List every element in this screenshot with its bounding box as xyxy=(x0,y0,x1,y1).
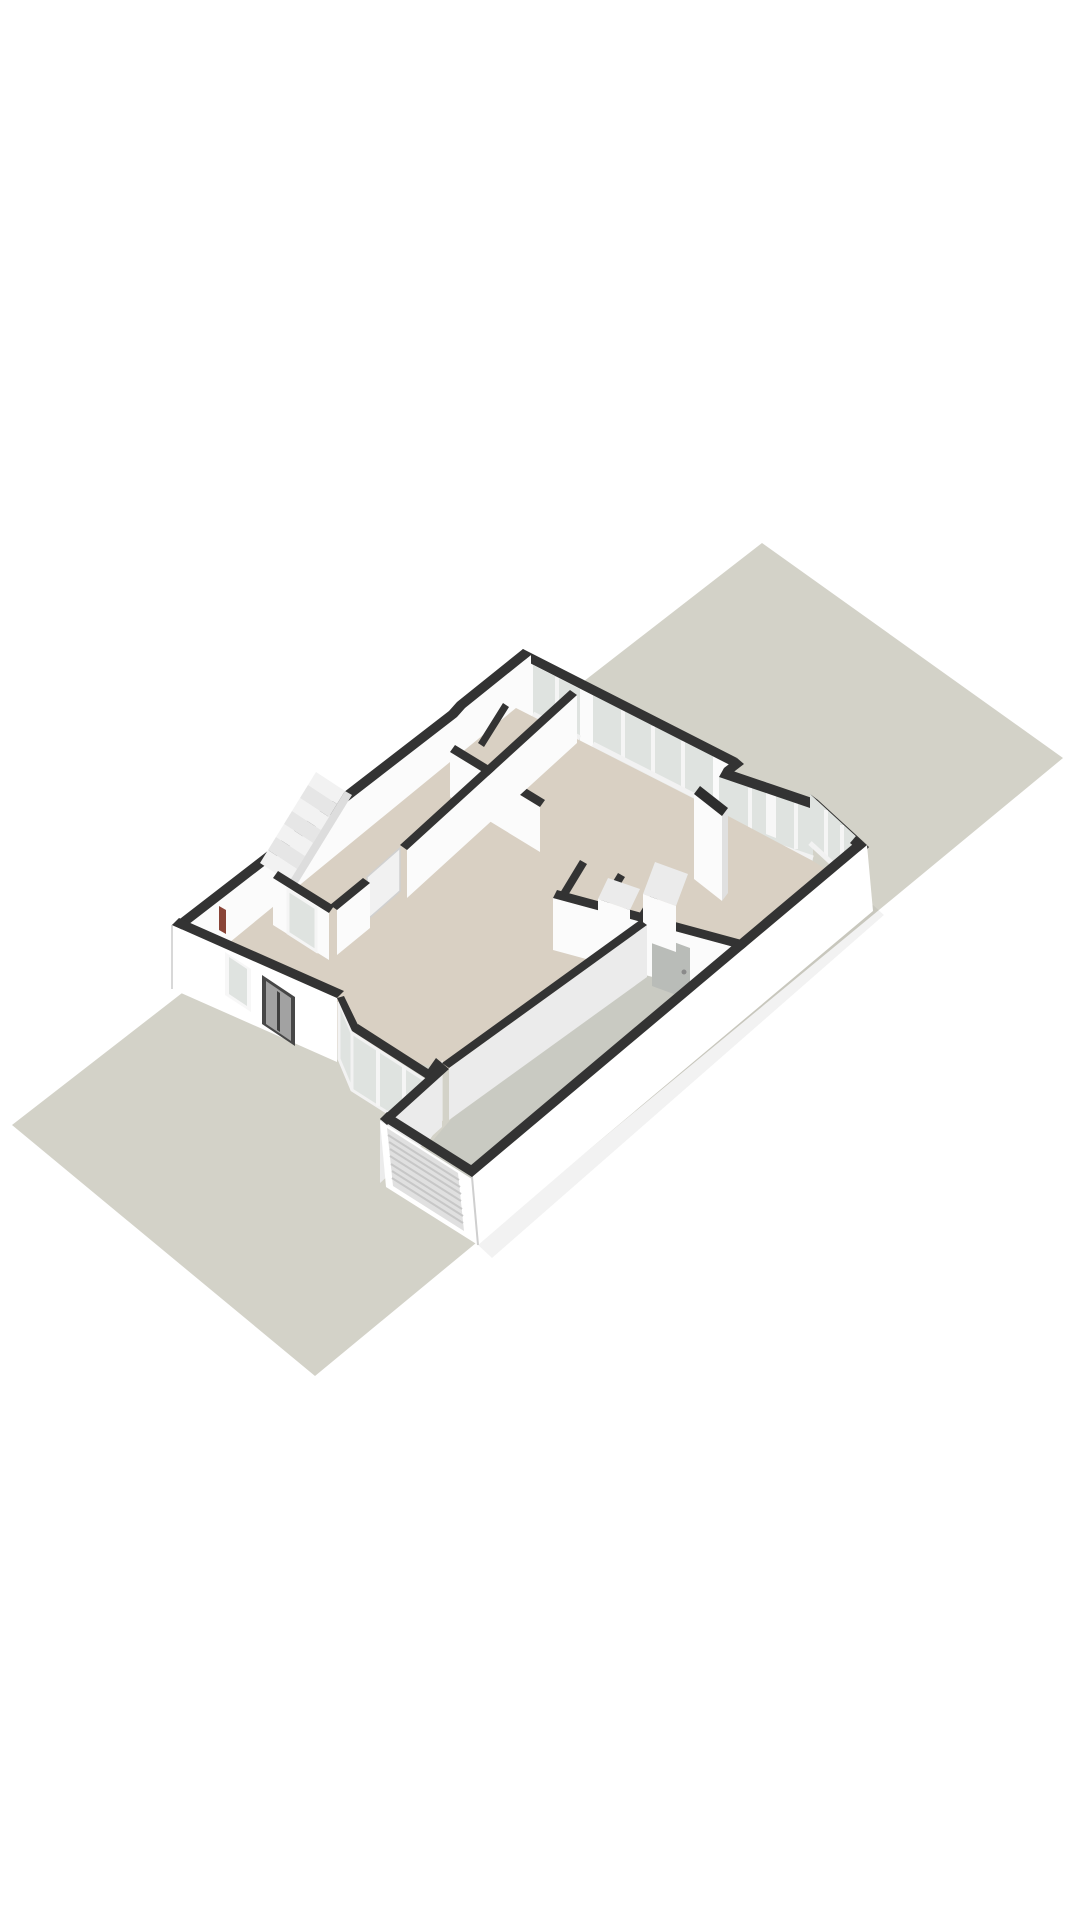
floorplan-render xyxy=(0,0,1080,1920)
chimney-side xyxy=(722,808,728,901)
radiator xyxy=(219,906,226,934)
door-handle-icon xyxy=(682,970,687,975)
front-door-glass-slit xyxy=(277,991,280,1032)
floorplan-svg xyxy=(0,0,1080,1920)
